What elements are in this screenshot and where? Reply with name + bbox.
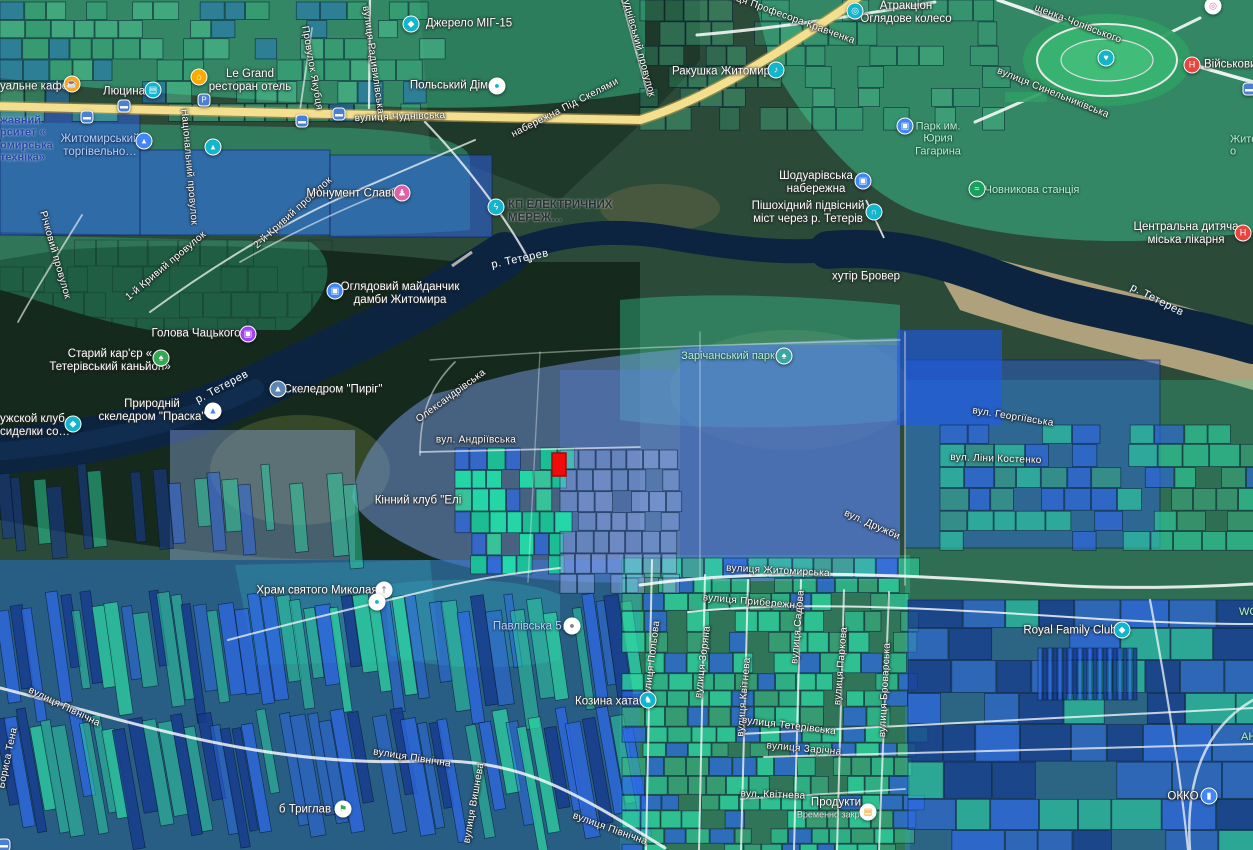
- poi-staryi-karier-label: Старий кар'єр «: [68, 348, 152, 361]
- poi-atraktsion-koleso-label: Оглядове колесо: [860, 13, 951, 26]
- photo-icon[interactable]: ▣: [327, 283, 344, 300]
- poi-park-gagarina-label: Парк им.: [916, 121, 961, 133]
- poi-ohliadovyi-maidanchyk-label: дамби Житомира: [354, 294, 447, 307]
- attraction-icon[interactable]: ◎: [1205, 0, 1222, 15]
- venue-icon[interactable]: ◆: [1114, 622, 1131, 639]
- school-icon-glyph: ▴: [211, 143, 216, 152]
- poi-kozyna-khata-label: Козина хата: [575, 696, 639, 709]
- photo-icon[interactable]: ▣: [240, 326, 257, 343]
- street-oleksandrivska: Олександрівська: [414, 367, 488, 425]
- climbing-icon[interactable]: ▲: [270, 381, 287, 398]
- map-viewport[interactable]: вулиця Чуднівськанабережна Під Скелямиву…: [0, 0, 1253, 850]
- poi-skeledrom-pyrih[interactable]: Скеледром "Пиріг": [284, 384, 383, 397]
- music-icon[interactable]: ♪: [768, 62, 785, 79]
- poi-dot-icon[interactable]: ●: [369, 594, 386, 611]
- bus-stop-icon-glyph: ▬: [120, 102, 128, 110]
- poi-royal-family-club-label: Royal Family Club: [1023, 625, 1116, 638]
- poi-kp-elektrychnykh-label: МЕРЕЖ…: [508, 212, 563, 225]
- climbing-icon-glyph: ▲: [209, 407, 218, 416]
- street-teterivska: вулиця Тетерівська: [741, 715, 836, 737]
- poi-universytet-clipped-label: жавний: [0, 114, 41, 126]
- poi-dot-icon-glyph: ●: [374, 598, 379, 607]
- poi-park-gagarina-label: Юрия: [923, 133, 952, 145]
- poi-cafe[interactable]: уальне кафе: [0, 81, 68, 94]
- poi-skeledrom-pyrih-label: Скеледром "Пиріг": [284, 384, 383, 397]
- poi-dzherelo-mig15[interactable]: Джерело МІГ-15: [426, 18, 512, 31]
- poi-rakushka-zhytomyr[interactable]: Ракушка Житомир: [672, 66, 770, 79]
- bus-stop-icon-glyph: ▬: [298, 117, 306, 125]
- street-kvitneva-lane: вул. Квітнева: [740, 788, 805, 801]
- climbing-icon-glyph: ▲: [274, 385, 283, 394]
- photo-icon-glyph: ▣: [901, 122, 910, 131]
- street-borysa-tena: Бориса Тена: [0, 726, 20, 789]
- poi-produkty-label: Продукти: [811, 797, 861, 810]
- poi-okko[interactable]: ОККО: [1167, 791, 1198, 804]
- poi-kp-elektrychnykh-label: КП ЕЛЕКТРИЧНИХ: [508, 199, 612, 212]
- heart-pin-icon-glyph: ♥: [1103, 54, 1108, 63]
- hotel-icon[interactable]: ⌂: [191, 69, 208, 86]
- poi-pishokhidnyi-mist-label: міст через р. Тетерів: [753, 213, 863, 226]
- poi-zarichanskyi-park-label: Зарічанський парк: [681, 350, 775, 362]
- attraction-icon-glyph: ◎: [1209, 2, 1217, 11]
- bridge-icon[interactable]: ∩: [866, 204, 883, 221]
- poi-holova-chatskoho[interactable]: Голова Чацького: [152, 328, 241, 341]
- poi-liutsyna[interactable]: Люцина: [103, 86, 145, 99]
- poi-zhyto-partial-label: Жито: [1230, 134, 1253, 146]
- poi-shoduarivska-label: набережна: [787, 183, 846, 196]
- bus-stop-icon[interactable]: ▬: [118, 100, 131, 113]
- poi-zhyto-partial[interactable]: Житоо: [1230, 134, 1253, 159]
- fuel-icon-glyph: ▮: [1207, 792, 1212, 801]
- hospital-icon-glyph: Н: [1189, 61, 1196, 70]
- poi-wo-partial-label: WO: [1239, 606, 1253, 618]
- street-pid-skeliamy: набережна Під Скелями: [510, 76, 621, 140]
- street-natsionalnyi-provulok: Національний провулок: [178, 108, 199, 225]
- poi-shoduarivska-label: Шодуарівська: [779, 170, 853, 183]
- poi-pishokhidnyi-mist-label: Пішохідний підвісний: [752, 200, 865, 213]
- poi-tryhlav[interactable]: б Триглав: [279, 804, 331, 817]
- photo-icon-glyph: ▣: [331, 287, 340, 296]
- poi-park-gagarina-label: Гагарина: [915, 145, 961, 157]
- monument-icon-glyph: ♟: [398, 189, 406, 198]
- address-icon-glyph: ●: [569, 622, 574, 631]
- bus-stop-icon[interactable]: ▬: [333, 108, 346, 121]
- street-richkovyi-provulok: Річковий провулок: [37, 210, 73, 300]
- poi-khutir-brover[interactable]: хутір Бровер: [832, 271, 900, 284]
- street-zoriana: вулиця Зоряна: [693, 625, 713, 698]
- poi-dot-icon[interactable]: ●: [489, 78, 506, 95]
- street-pivnichna-1: вулиця Північна: [571, 810, 649, 847]
- poi-universytet-clipped[interactable]: жавнийрситет «омирськатехніка»: [0, 114, 53, 163]
- address-icon[interactable]: ●: [564, 618, 581, 635]
- farm-icon[interactable]: ♞: [640, 692, 657, 709]
- river-teteriv-3: р. Тетерев: [1128, 281, 1185, 318]
- street-chudnivskyi-provulok: Чуднівський провулок: [619, 0, 657, 98]
- poi-kozyna-khata[interactable]: Козина хата: [575, 696, 639, 709]
- electric-icon[interactable]: ϟ: [488, 199, 505, 216]
- poi-kinnyi-klub[interactable]: Кінний клуб "Елі: [375, 495, 462, 508]
- poi-khram-mykolaia[interactable]: Храм святого Миколая: [256, 585, 377, 598]
- poi-holova-chatskoho-label: Голова Чацького: [152, 328, 241, 341]
- park-tree-icon-glyph: ♠: [782, 352, 787, 361]
- poi-skeledrom-praska-label: скеледром "Праска": [98, 411, 205, 424]
- park-tree-icon[interactable]: ♠: [776, 348, 793, 365]
- poi-torhivelnyi-label: торгівельно…: [63, 146, 137, 159]
- street-pivnichna-2: вулиця Північна: [372, 746, 451, 769]
- parking-icon[interactable]: P: [198, 94, 211, 107]
- poi-torhivelnyi[interactable]: Житомирськийторгівельно…: [61, 133, 140, 159]
- bus-stop-icon[interactable]: ▬: [296, 115, 309, 128]
- school-icon[interactable]: ▴: [205, 139, 222, 156]
- nature-icon-glyph: ♠: [159, 354, 164, 363]
- boat-station-icon[interactable]: ≈: [969, 181, 986, 198]
- street-heorhiivska: вул. Георгіївська: [972, 405, 1055, 429]
- street-polova: вулиця Польова: [642, 620, 663, 700]
- grocery-icon[interactable]: ▤: [860, 804, 877, 821]
- photo-icon-glyph: ▣: [859, 177, 868, 186]
- poi-wo-partial[interactable]: WO: [1239, 606, 1253, 618]
- street-andriivska: вул. Андріївська: [436, 435, 516, 446]
- poi-muzhskoi-klub[interactable]: ужской клубсиделки со…: [0, 413, 70, 439]
- grocery-icon-glyph: ▤: [864, 808, 873, 817]
- poi-polskyi-dim[interactable]: Польський Дім: [410, 80, 488, 93]
- church-icon-glyph: †: [381, 586, 386, 595]
- poi-pavlivska-5[interactable]: Павлівська 5…: [493, 621, 573, 634]
- street-profesora-kravchenka: вулиця Професора Кравченка: [714, 0, 857, 46]
- monument-icon[interactable]: ♟: [394, 185, 411, 202]
- parking-icon-glyph: P: [201, 96, 206, 104]
- nature-icon[interactable]: ♠: [153, 350, 170, 367]
- street-chopivskoho: щенка-Чопівського: [1033, 2, 1123, 45]
- bus-stop-icon[interactable]: ▬: [81, 111, 94, 124]
- bridge-icon-glyph: ∩: [871, 208, 877, 217]
- hospital-icon[interactable]: Н: [1184, 57, 1201, 74]
- university-icon-glyph: ▴: [142, 137, 147, 146]
- poi-an-partial-label: АН: [1241, 731, 1253, 743]
- street-parkova: вулиця Паркова: [832, 626, 850, 705]
- street-1-kryvyi-provulok: 1-й Кривий провулок: [124, 229, 209, 303]
- photo-icon[interactable]: ▣: [897, 118, 914, 135]
- poi-liutsyna-label: Люцина: [103, 86, 145, 99]
- poi-khutir-brover-label: хутір Бровер: [832, 271, 900, 284]
- climbing-icon[interactable]: ▲: [205, 403, 222, 420]
- photo-icon[interactable]: ▣: [855, 173, 872, 190]
- electric-icon-glyph: ϟ: [494, 203, 499, 212]
- poi-ohliadovyi-maidanchyk-label: Оглядовий майданчик: [341, 281, 460, 294]
- ferris-wheel-icon-glyph: ◎: [851, 7, 859, 16]
- fuel-icon[interactable]: ▮: [1201, 788, 1218, 805]
- club-icon-glyph: ◆: [70, 420, 77, 429]
- poi-muzhskoi-klub-label: сиделки со…: [0, 426, 70, 439]
- farm-icon-glyph: ♞: [644, 696, 652, 705]
- poi-royal-family-club[interactable]: Royal Family Club: [1023, 625, 1116, 638]
- street-chudnivska: вулиця Чуднівська: [354, 110, 445, 124]
- poi-tryhlav-label: б Триглав: [279, 804, 331, 817]
- poi-shoduarivska[interactable]: Шодуарівськанабережна: [779, 170, 853, 196]
- street-vyshneva: вулиця Вишнева: [462, 762, 487, 844]
- poi-dzherelo-mig15-label: Джерело МІГ-15: [426, 18, 512, 31]
- poi-pavlivska-5-label: Павлівська 5…: [493, 621, 573, 634]
- poi-monument-slavy[interactable]: Монумент Слави: [306, 188, 397, 201]
- poi-universytet-clipped-label: рситет «: [0, 127, 46, 139]
- cafe-icon[interactable]: ☕: [64, 76, 81, 93]
- poi-polskyi-dim-label: Польський Дім: [410, 80, 488, 93]
- poi-le-grand-label: ресторан отель: [209, 81, 291, 94]
- street-zhytomyrska: вулиця Житомирська: [726, 563, 830, 579]
- street-provulok-yakubtsia: Провулок Якубця: [299, 25, 325, 111]
- poi-ohliadovyi-maidanchyk[interactable]: Оглядовий майданчикдамби Житомира: [341, 281, 460, 307]
- street-druzhby: вул. Дружби: [842, 508, 901, 542]
- poi-atraktsion-koleso-label: Атракціон: [880, 0, 932, 13]
- hospital-icon-glyph: Н: [1240, 229, 1247, 238]
- street-pivnichna-3: вулиця Північна: [27, 685, 102, 729]
- university-icon[interactable]: ▴: [136, 133, 153, 150]
- shopping-cart-icon[interactable]: ▤: [145, 82, 162, 99]
- street-kvitneva-vertical: вулиця Квітнева: [735, 657, 753, 737]
- poi-okko-label: ОККО: [1167, 791, 1198, 804]
- ferris-wheel-icon[interactable]: ◎: [847, 3, 864, 20]
- poi-park-gagarina[interactable]: Парк им.ЮрияГагарина: [915, 121, 961, 158]
- poi-khram-mykolaia-label: Храм святого Миколая: [256, 585, 377, 598]
- shopping-cart-icon-glyph: ▤: [149, 86, 158, 95]
- street-pryberezhna: вулиця Прибережна: [702, 592, 801, 612]
- poi-kinnyi-klub-label: Кінний клуб "Елі: [375, 495, 462, 508]
- poi-kp-elektrychnykh[interactable]: КП ЕЛЕКТРИЧНИХМЕРЕЖ…: [508, 199, 612, 225]
- poi-skeledrom-praska[interactable]: Природнійскеледром "Праска": [98, 398, 205, 424]
- bus-stop-icon[interactable]: ▬: [0, 839, 11, 850]
- heart-pin-icon[interactable]: ♥: [1098, 50, 1115, 67]
- street-synelnykivska: вулиця Синельниківська: [995, 65, 1110, 120]
- poi-zarichanskyi-park[interactable]: Зарічанський парк: [681, 350, 775, 362]
- poi-le-grand-label: Le Grand: [226, 68, 274, 81]
- poi-universytet-clipped-label: техніка»: [0, 151, 45, 163]
- street-brovarska: вулиця Броварська: [877, 642, 893, 737]
- poi-le-grand[interactable]: Le Grandресторан отель: [209, 68, 291, 94]
- flag-icon[interactable]: ⚑: [335, 801, 352, 818]
- hospital-icon[interactable]: Н: [1235, 225, 1252, 242]
- poi-cafe-label: уальне кафе: [0, 81, 68, 94]
- street-liny-kostenko: вул. Ліни Костенко: [950, 452, 1042, 466]
- poi-dytiacha-likarnia-label: міська лікарня: [1147, 234, 1224, 247]
- bus-stop-icon-glyph: ▬: [335, 110, 343, 118]
- bus-stop-icon-glyph: ▬: [83, 113, 91, 121]
- bus-stop-icon-glyph: ▬: [0, 841, 8, 849]
- flag-icon-glyph: ⚑: [339, 805, 347, 814]
- street-radyvylivska: вулиця Радивилівська: [360, 5, 386, 115]
- poi-pishokhidnyi-mist[interactable]: Пішохідний підвіснийміст через р. Тетері…: [752, 200, 865, 226]
- street-zarichna: вулиця Зарічна: [766, 740, 842, 758]
- poi-universytet-clipped-label: омирська: [0, 139, 53, 151]
- venue-icon-glyph: ◆: [1119, 626, 1126, 635]
- poi-monument-slavy-label: Монумент Слави: [306, 188, 397, 201]
- poi-atraktsion-koleso[interactable]: АтракціонОглядове колесо: [860, 0, 951, 26]
- poi-skeledrom-praska-label: Природній: [124, 398, 180, 411]
- poi-muzhskoi-klub-label: ужской клуб: [0, 413, 65, 426]
- poi-rakushka-zhytomyr-label: Ракушка Житомир: [672, 66, 770, 79]
- attraction-icon[interactable]: ◆: [403, 16, 420, 33]
- map-labels-layer: вулиця Чуднівськанабережна Під Скелямиву…: [0, 0, 1253, 850]
- street-sadova: вулиця Садова: [789, 590, 806, 665]
- club-icon[interactable]: ◆: [65, 416, 82, 433]
- poi-dytiacha-likarnia-label: Центральна дитяча: [1134, 221, 1239, 234]
- poi-chovnykova-stantsiia[interactable]: Човникова станція: [985, 184, 1080, 196]
- music-icon-glyph: ♪: [774, 66, 779, 75]
- hotel-icon-glyph: ⌂: [196, 73, 201, 82]
- poi-viiskovyi-label: Військови: [1204, 59, 1253, 72]
- poi-staryi-karier-label: Тетерівський каньйон»: [49, 361, 170, 374]
- poi-dytiacha-likarnia[interactable]: Центральна дитячаміська лікарня: [1134, 221, 1239, 247]
- poi-torhivelnyi-label: Житомирський: [61, 133, 140, 146]
- poi-chovnykova-stantsiia-label: Човникова станція: [985, 184, 1080, 196]
- bus-stop-icon[interactable]: ▬: [1243, 83, 1253, 96]
- street-2-kryvyi-provulok: 2-й Кривий провулок: [252, 175, 335, 251]
- river-teteriv-1: р. Тетерев: [490, 247, 549, 271]
- cafe-icon-glyph: ☕: [66, 80, 77, 89]
- attraction-icon-glyph: ◆: [408, 20, 415, 29]
- boat-station-icon-glyph: ≈: [975, 185, 980, 194]
- poi-viiskovyi[interactable]: Військови: [1204, 59, 1253, 72]
- poi-an-partial[interactable]: АН: [1241, 731, 1253, 743]
- poi-zhyto-partial-label: о: [1230, 146, 1236, 158]
- bus-stop-icon-glyph: ▬: [1245, 85, 1253, 93]
- poi-dot-icon-glyph: ●: [494, 82, 499, 91]
- photo-icon-glyph: ▣: [244, 330, 253, 339]
